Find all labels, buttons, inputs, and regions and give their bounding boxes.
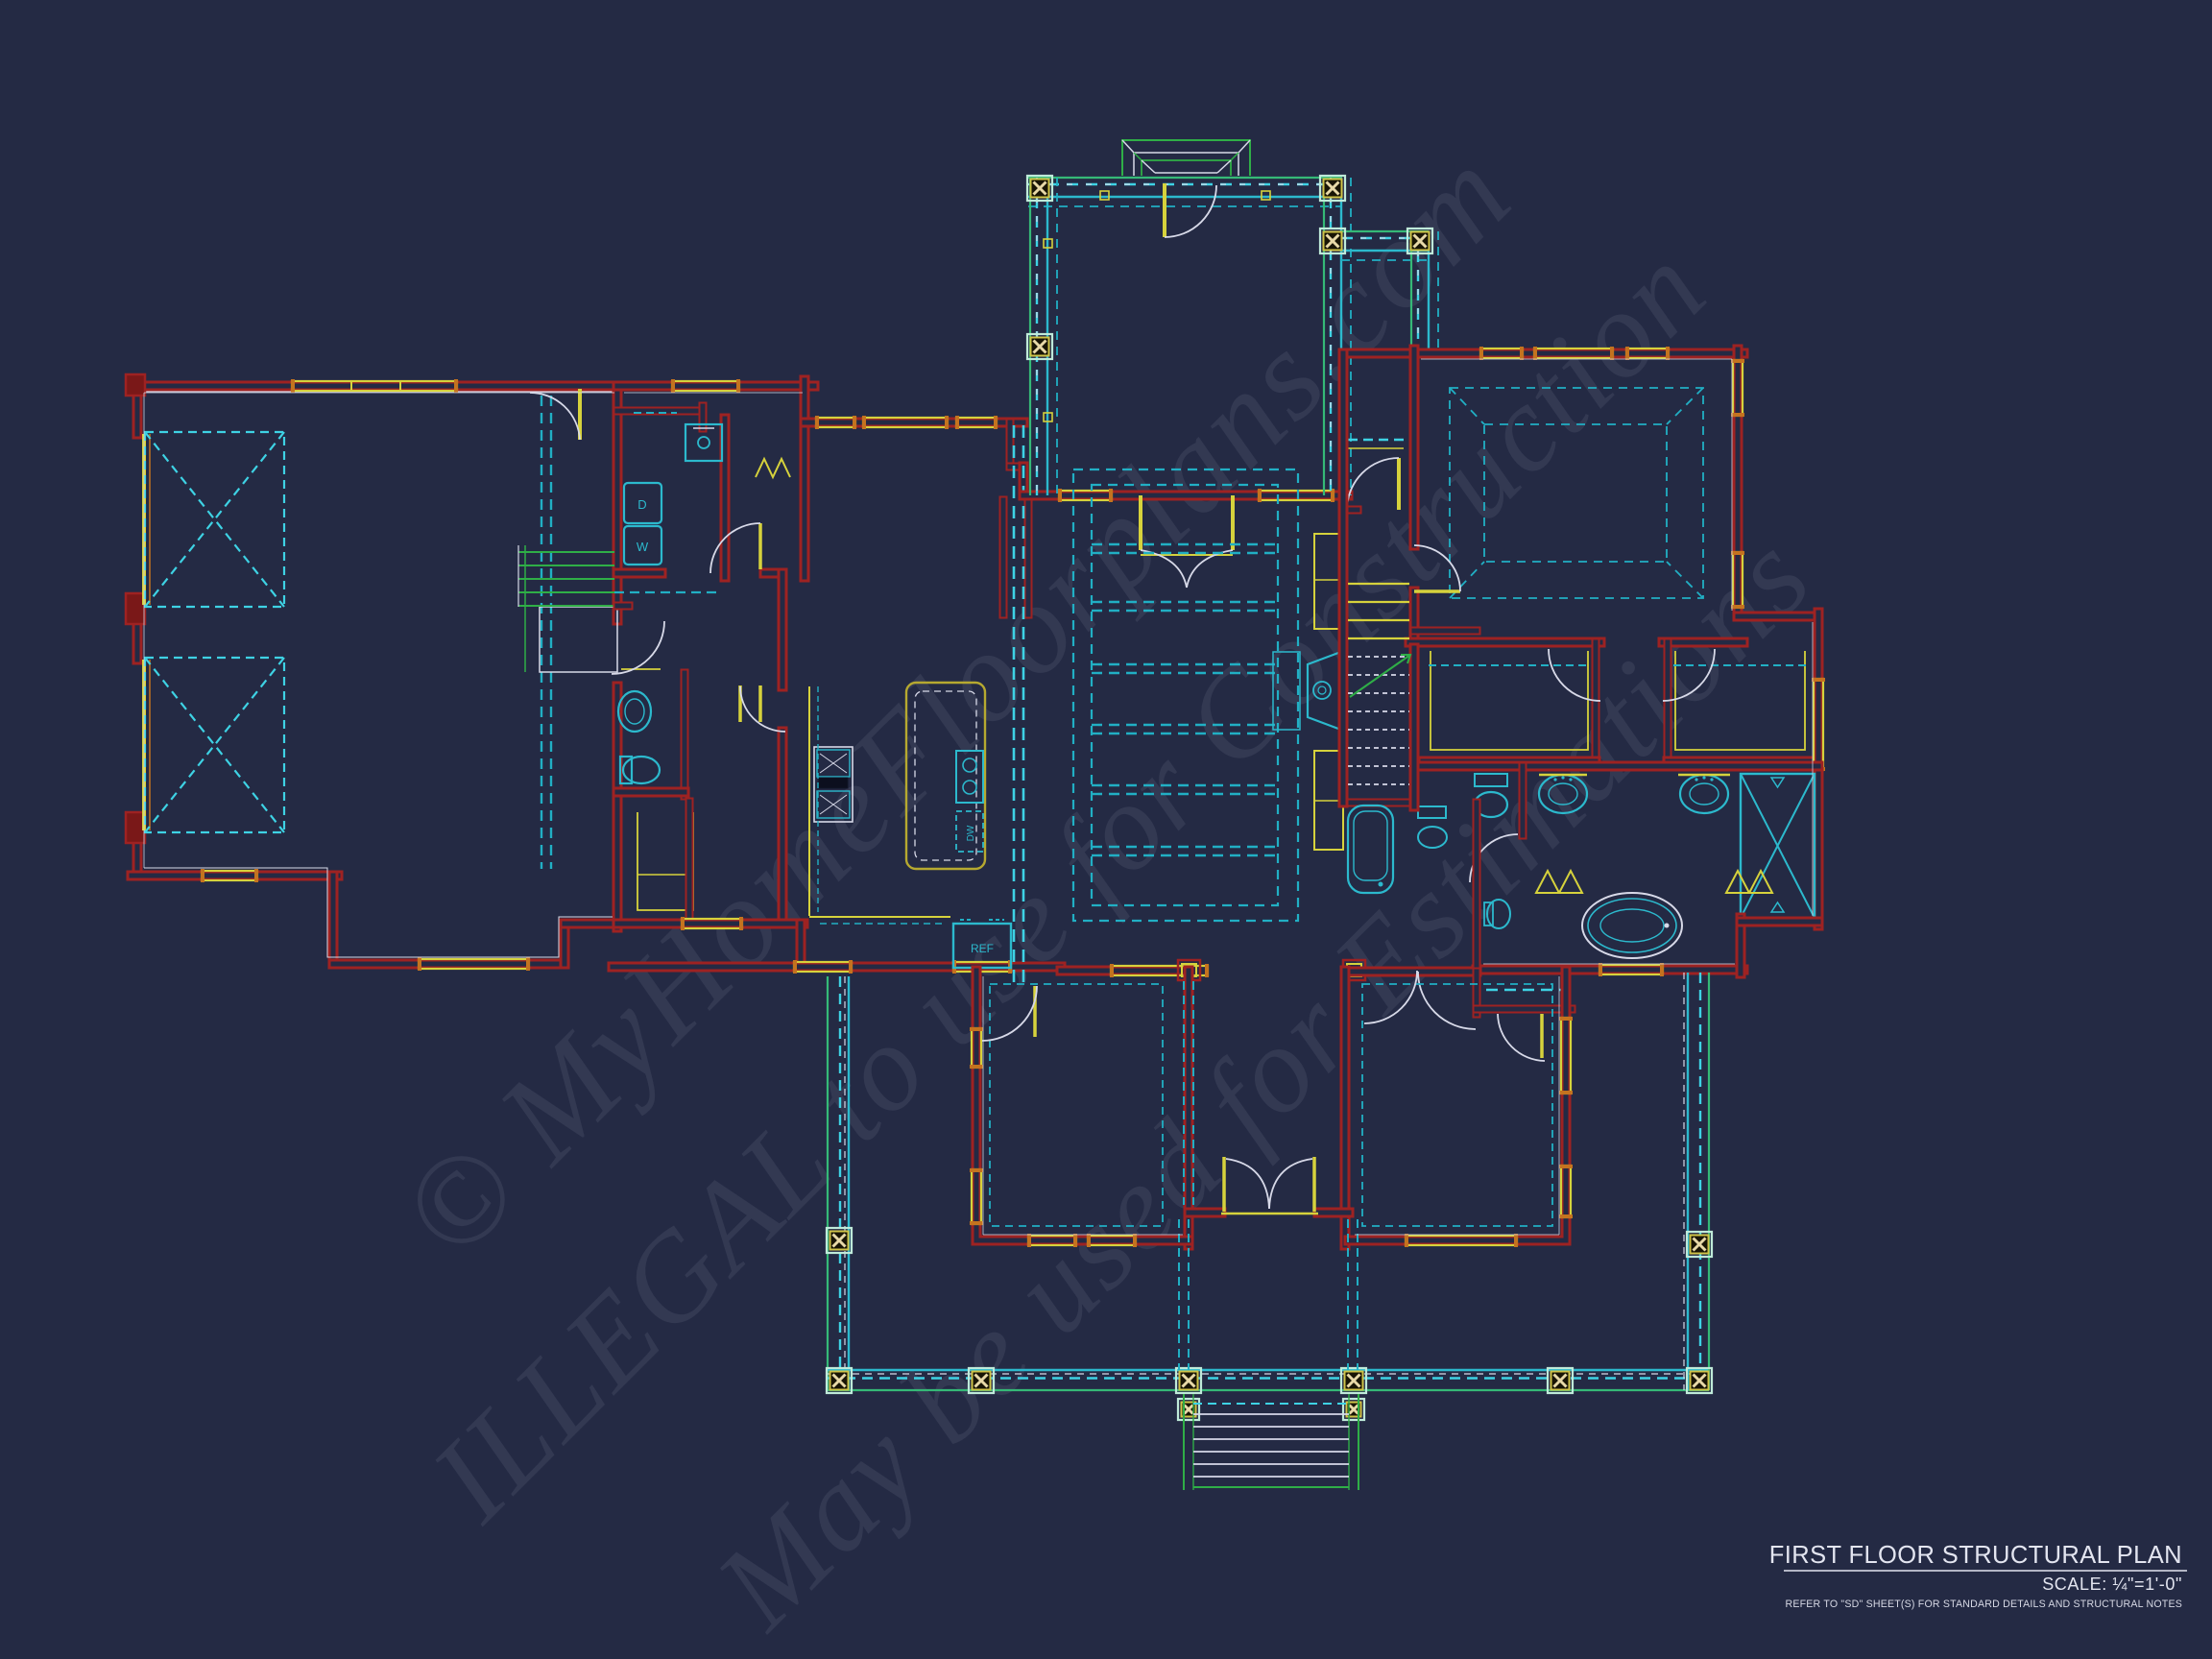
svg-text:FIRST FLOOR STRUCTURAL PLAN: FIRST FLOOR STRUCTURAL PLAN xyxy=(1769,1542,2182,1569)
svg-text:SCALE: ¼"=1'-0": SCALE: ¼"=1'-0" xyxy=(2042,1575,2182,1594)
svg-text:D: D xyxy=(637,497,646,512)
svg-text:W: W xyxy=(637,540,649,554)
svg-text:REFER TO "SD" SHEET(S) FOR STA: REFER TO "SD" SHEET(S) FOR STANDARD DETA… xyxy=(1785,1599,2182,1610)
svg-text:DW: DW xyxy=(966,825,976,841)
svg-text:REF: REF xyxy=(971,942,994,955)
